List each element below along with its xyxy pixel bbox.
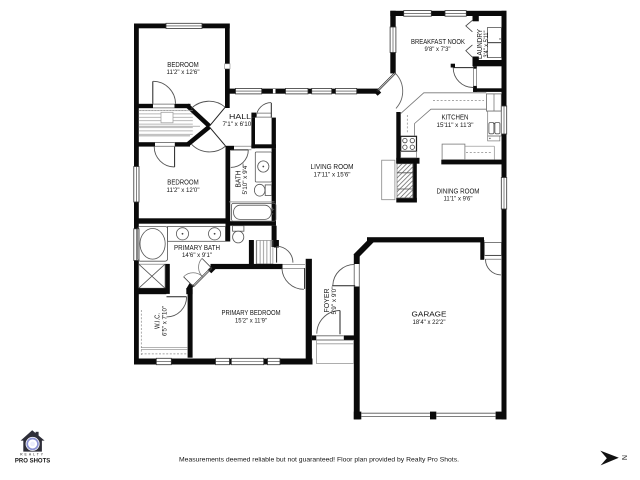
svg-text:KITCHEN: KITCHEN [442, 113, 469, 122]
svg-text:W.I.C.: W.I.C. [152, 313, 161, 329]
svg-text:FOYER: FOYER [322, 289, 331, 313]
svg-text:7'1" x 6'10": 7'1" x 6'10" [223, 121, 255, 128]
svg-text:15'11" x 11'3": 15'11" x 11'3" [437, 122, 475, 129]
svg-text:3'4" x 5'11": 3'4" x 5'11" [483, 30, 490, 58]
svg-text:REALTY: REALTY [20, 452, 45, 456]
svg-text:11'2" x 12'0": 11'2" x 12'0" [167, 187, 201, 194]
svg-text:PRIMARY BATH: PRIMARY BATH [174, 243, 220, 252]
svg-text:11'1" x 9'6": 11'1" x 9'6" [444, 196, 474, 203]
svg-text:5'10" x 9'4": 5'10" x 9'4" [242, 163, 249, 195]
svg-text:5'9" x 9'0": 5'9" x 9'0" [331, 286, 338, 315]
svg-text:DINING ROOM: DINING ROOM [437, 187, 480, 196]
svg-text:BEDROOM: BEDROOM [167, 60, 199, 69]
svg-text:18'4" x 22'2": 18'4" x 22'2" [413, 319, 447, 326]
svg-text:6'5" x 7'10": 6'5" x 7'10" [161, 305, 168, 336]
svg-text:GARAGE: GARAGE [412, 309, 447, 318]
svg-text:LIVING ROOM: LIVING ROOM [311, 162, 354, 171]
svg-text:15'2" x 11'9": 15'2" x 11'9" [235, 318, 268, 325]
svg-text:11'2" x 12'6": 11'2" x 12'6" [167, 69, 201, 76]
svg-text:N: N [620, 455, 627, 460]
svg-text:Measurements deemed reliable b: Measurements deemed reliable but not gua… [179, 456, 459, 463]
svg-text:BEDROOM: BEDROOM [167, 178, 199, 187]
svg-text:PRO SHOTS: PRO SHOTS [15, 459, 50, 465]
svg-text:9'8" x 7'3": 9'8" x 7'3" [425, 46, 452, 53]
svg-text:BREAKFAST NOOK: BREAKFAST NOOK [411, 37, 465, 46]
svg-text:HALL: HALL [229, 112, 251, 121]
svg-text:17'11" x 15'6": 17'11" x 15'6" [314, 172, 352, 179]
svg-text:PRIMARY BEDROOM: PRIMARY BEDROOM [222, 308, 281, 317]
svg-text:14'6" x 9'1": 14'6" x 9'1" [182, 252, 213, 259]
